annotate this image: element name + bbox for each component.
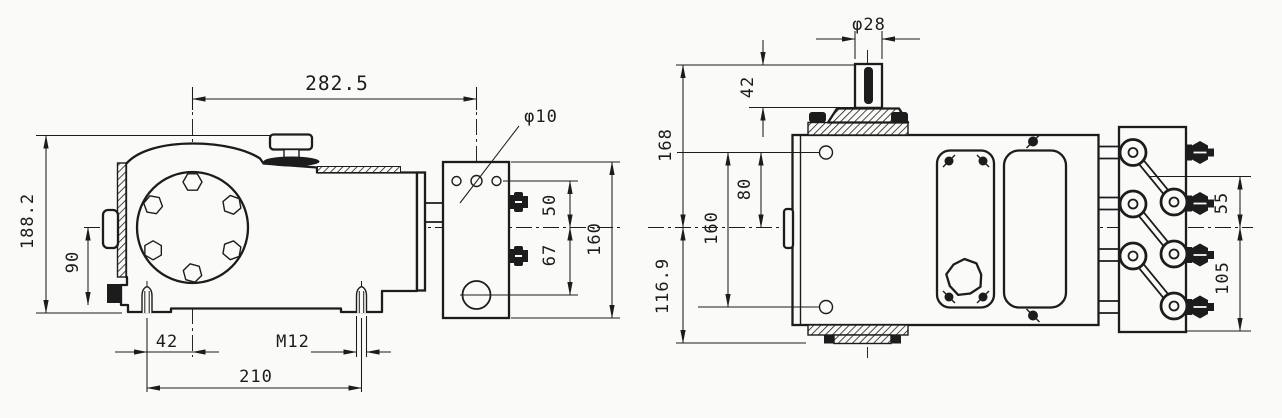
manifold-hole <box>492 177 501 186</box>
body-top-rib <box>318 167 401 173</box>
flange-bolt <box>183 174 202 190</box>
cylinder-end-face <box>417 173 425 291</box>
dim-label-shaft-extension: 42 <box>738 76 758 98</box>
filler-cap-base <box>264 157 320 167</box>
dim-label-centerline-to-rear: 116.9 <box>653 258 673 314</box>
valve-plug <box>1120 191 1146 217</box>
extension-line <box>855 31 882 59</box>
valve-plug <box>1161 241 1187 267</box>
dim-label-overall-height: 188.2 <box>18 193 38 249</box>
dim-label-valve-spacing: 105 <box>1213 261 1233 295</box>
manifold-hex-fitting <box>1186 244 1214 267</box>
dim-label-lower-port: 67 <box>540 244 560 266</box>
plunger-rod-stub <box>425 203 443 222</box>
top-bearing-hub <box>808 109 908 136</box>
filler-cap-stem <box>284 150 299 158</box>
manifold-hex-fitting <box>1186 192 1214 215</box>
dim-label-stud-spacing: 210 <box>239 367 273 387</box>
dim-label-valve-to-centerline: 55 <box>1212 192 1232 214</box>
shaft-keyway <box>864 67 873 104</box>
manifold-hex-fitting <box>1186 141 1214 164</box>
dim-label-upper-port: 50 <box>540 194 560 216</box>
manifold-hole <box>452 177 461 186</box>
valve-plug <box>1120 243 1146 269</box>
dim-label-hole-diameter: φ10 <box>524 107 558 127</box>
dim-label-base-to-centerline: 90 <box>63 251 83 273</box>
bottom-bearing-hub <box>808 325 908 344</box>
top-view: φ28 42 168 80 160 116.9 55 105 <box>648 15 1253 358</box>
valve-plug <box>1161 189 1187 215</box>
shaft-end-boss <box>784 209 793 248</box>
dim-label-stud-to-crank: 42 <box>156 332 178 352</box>
technical-drawing-canvas: 282.5 φ10 188.2 90 50 67 160 42 M12 210 <box>0 0 1282 418</box>
cylinder-stubs <box>1099 147 1120 314</box>
pump-drawing-svg: 282.5 φ10 188.2 90 50 67 160 42 M12 210 <box>0 0 1282 418</box>
dim-label-crank-to-manifold: 282.5 <box>305 72 369 95</box>
housing-bolt-hole <box>820 146 833 159</box>
valve-plug <box>1120 140 1146 166</box>
dim-label-hole-to-centerline: 80 <box>735 178 755 200</box>
dim-label-hole-spacing: 160 <box>702 211 722 245</box>
housing-bolt-hole <box>820 301 833 314</box>
rear-shaft-cover <box>103 210 118 248</box>
drain-plug <box>107 284 121 303</box>
discharge-fitting <box>509 246 528 266</box>
valve-plug <box>1161 293 1187 319</box>
discharge-fitting <box>509 192 528 212</box>
side-cover <box>1004 151 1066 308</box>
dim-label-manifold-height: 160 <box>585 222 605 256</box>
dim-label-stud-thread: M12 <box>276 332 310 352</box>
filler-cap <box>270 135 312 150</box>
dim-label-shaft-diameter: φ28 <box>852 15 886 35</box>
manifold-hex-fitting <box>1186 296 1214 319</box>
dim-label-shaft-to-centerline: 168 <box>656 128 676 162</box>
side-view: 282.5 φ10 188.2 90 50 67 160 42 M12 210 <box>18 72 622 392</box>
